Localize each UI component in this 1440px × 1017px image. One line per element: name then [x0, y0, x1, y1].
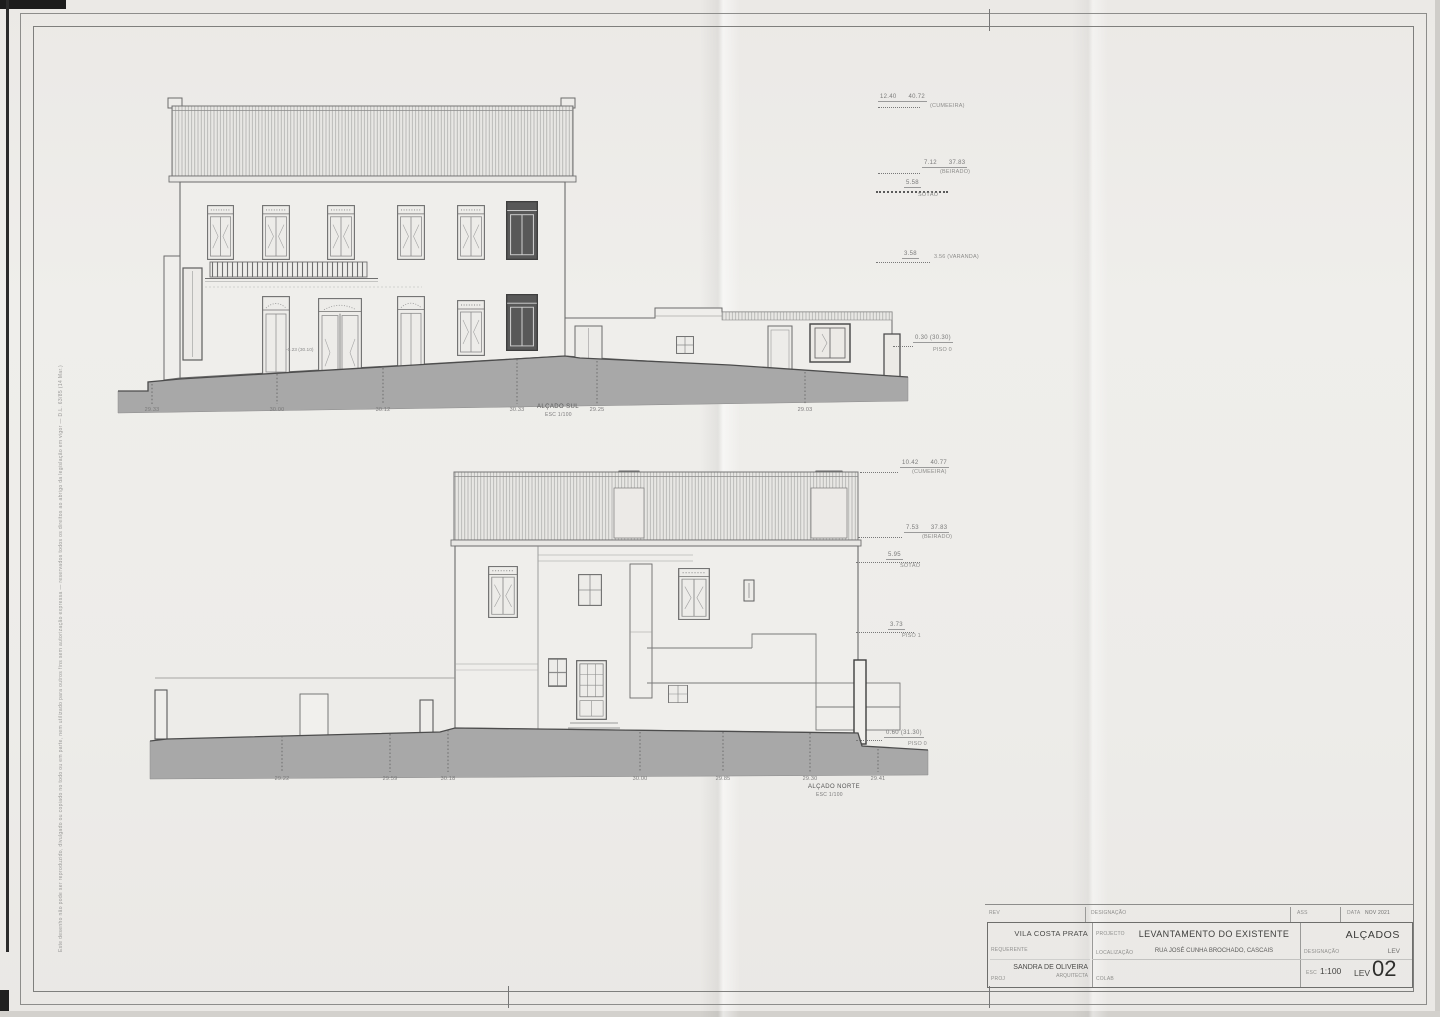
window	[489, 567, 518, 618]
door	[398, 297, 425, 373]
annex-door	[768, 326, 792, 373]
spot-level: 29.30	[803, 776, 818, 782]
window	[398, 206, 425, 260]
scan-edge-top-left	[0, 0, 66, 9]
window	[679, 569, 710, 620]
window-shuttered	[507, 202, 538, 260]
roof-dormer-face	[614, 488, 644, 538]
spot-level: 29.25	[590, 407, 605, 413]
window	[458, 301, 485, 356]
scale-label: ESC	[1306, 970, 1317, 976]
south-elevation-drawing: -0.23 (30.10)	[110, 88, 940, 433]
roof	[169, 106, 576, 182]
client-label: REQUERENTE	[991, 947, 1028, 953]
designacao-column-label: DESIGNAÇÃO	[1091, 910, 1126, 916]
window-shuttered	[507, 295, 538, 351]
spot-level: 30.18	[441, 776, 456, 782]
double-door	[319, 299, 362, 376]
fold-tick	[989, 9, 990, 31]
ass-label: ASS	[1297, 910, 1308, 916]
project-label: PROJECTO	[1096, 931, 1125, 937]
sheet-number: 02	[1372, 956, 1396, 982]
window	[263, 206, 290, 260]
project-title: LEVANTAMENTO DO EXISTENTE	[1128, 929, 1300, 939]
location-value: RUA JOSÉ CUNHA BROCHADO, CASCAIS	[1128, 948, 1300, 954]
spot-level: 29.85	[716, 776, 731, 782]
fold-tick	[508, 986, 509, 1008]
slit-window	[744, 580, 754, 601]
window	[458, 206, 485, 260]
small-window	[677, 337, 694, 354]
spot-level: 29.03	[798, 407, 813, 413]
architect-name: SANDRA DE OLIVEIRA	[988, 964, 1088, 971]
data-label: DATA	[1347, 910, 1360, 916]
spot-level: 29.22	[275, 776, 290, 782]
fold-crease	[1072, 0, 1108, 1017]
north-elevation-drawing: 29.22 29.59 30.18 30.00 29.85 29.30 29.4…	[140, 452, 940, 817]
spot-level: 30.12	[376, 407, 391, 413]
series-label: LEV	[1300, 948, 1406, 955]
roof	[451, 472, 861, 546]
scanned-sheet: Este desenho não pode ser reproduzido, d…	[0, 0, 1440, 1017]
spot-level: 30.00	[270, 407, 285, 413]
wall-pilaster	[630, 564, 652, 698]
spot-level: 29.33	[145, 407, 160, 413]
door	[263, 297, 290, 376]
window	[579, 575, 602, 606]
scale-value: 1:100	[1320, 966, 1341, 976]
small-window	[669, 685, 688, 702]
proj-label: PROJ	[991, 976, 1005, 982]
window	[328, 206, 355, 260]
window	[208, 206, 234, 260]
drawing-title: ALÇADO SUL	[537, 404, 579, 410]
sheet-code: LEV	[1354, 968, 1370, 978]
glazed-door	[577, 661, 607, 720]
spot-level: 29.41	[871, 776, 886, 782]
small-window	[549, 659, 567, 686]
spot-level: 30.00	[633, 776, 648, 782]
scan-edge-right	[1435, 0, 1440, 1017]
colab-label: COLAB	[1096, 976, 1114, 982]
date-value: NOV 2021	[1365, 910, 1390, 916]
scan-edge-bottom	[0, 1011, 1440, 1017]
terrain	[150, 728, 928, 779]
title-block-header-row: REV DESIGNAÇÃO ASS DATA NOV 2021	[985, 904, 1413, 923]
fold-tick	[989, 986, 990, 1008]
drawing-scale: ESC 1/100	[816, 792, 843, 798]
annex-window	[810, 324, 850, 362]
side-wall	[164, 256, 180, 380]
roof-dormer-face	[811, 488, 847, 538]
side-door	[183, 268, 202, 360]
spot-level-note: -0.23 (30.10)	[286, 347, 314, 353]
spot-level: 30.33	[510, 407, 525, 413]
end-pillar	[854, 660, 866, 744]
drawing-title: ALÇADO NORTE	[808, 784, 860, 790]
scan-edge-bottom-left	[0, 990, 9, 1017]
gate	[300, 694, 328, 737]
scan-edge-left	[6, 0, 9, 952]
client-name: VILA COSTA PRATA	[988, 929, 1088, 938]
title-block-main: VILA COSTA PRATA REQUERENTE SANDRA DE OL…	[987, 922, 1413, 988]
spot-level: 29.59	[383, 776, 398, 782]
drawing-scale: ESC 1/100	[545, 412, 572, 418]
copyright-note: Este desenho não pode ser reproduzido, d…	[58, 500, 64, 952]
rev-label: REV	[989, 910, 1000, 916]
sheet-type: ALÇADOS	[1300, 929, 1406, 941]
